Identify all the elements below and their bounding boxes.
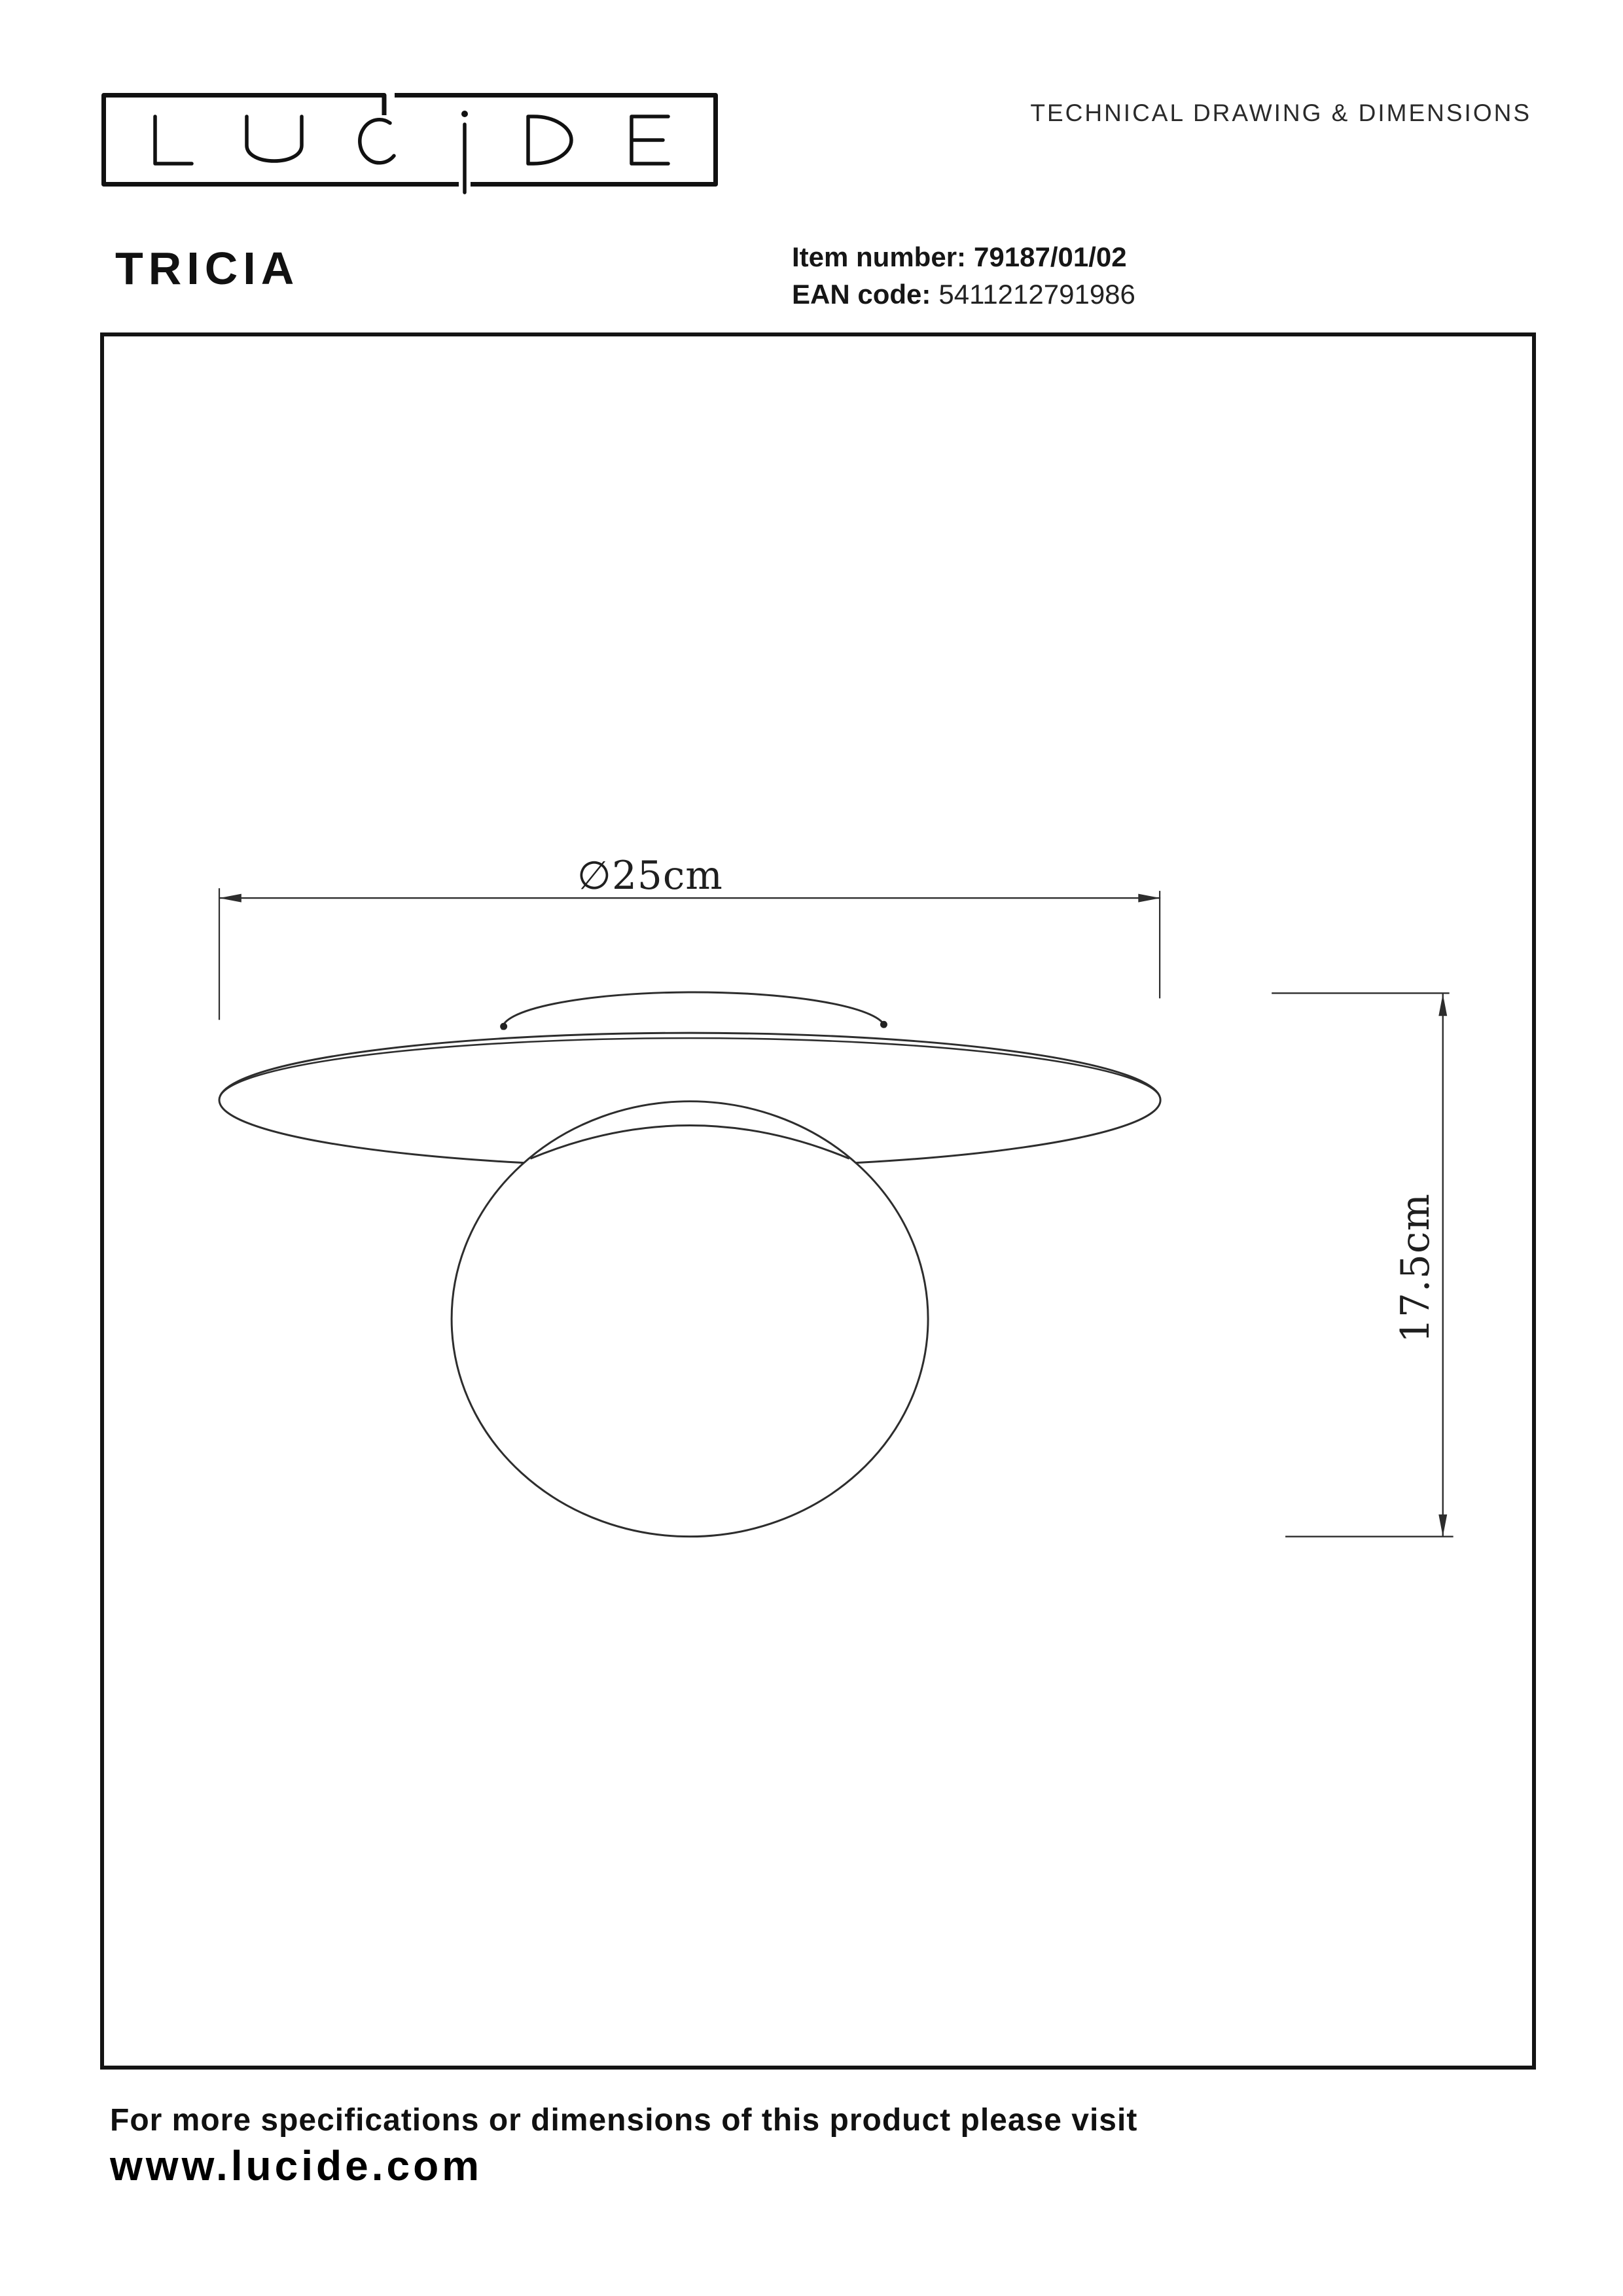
product-name: TRICIA <box>115 242 299 295</box>
item-number-label: Item number: <box>792 242 966 272</box>
diameter-dimension-label: ∅25cm <box>577 853 723 899</box>
footer-website-link[interactable]: www.lucide.com <box>110 2142 482 2190</box>
height-arrow-bottom <box>1438 1515 1447 1537</box>
logo-letter-c <box>360 120 394 163</box>
logo-letter-l <box>155 117 192 164</box>
logo-letter-u <box>247 117 302 161</box>
canopy-screw-right <box>880 1021 887 1028</box>
technical-drawing: ∅25cm 17.5cm <box>104 336 1532 2066</box>
item-number-row: Item number:79187/01/02 <box>792 238 1135 276</box>
product-codes: Item number:79187/01/02 EAN code:5411212… <box>792 238 1135 313</box>
doc-type-title: TECHNICAL DRAWING & DIMENSIONS <box>1030 99 1531 127</box>
logo-letter-i-dot <box>461 111 468 117</box>
canopy-screw-left <box>500 1023 507 1030</box>
height-dimension-label: 17.5cm <box>1393 1193 1438 1343</box>
diameter-arrow-right <box>1138 894 1160 903</box>
technical-drawing-canvas: ∅25cm 17.5cm <box>100 332 1536 2070</box>
ean-row: EAN code:5411212791986 <box>792 276 1135 313</box>
logo-letter-e <box>632 117 668 164</box>
ean-label: EAN code: <box>792 279 931 310</box>
lucide-logo <box>101 93 718 195</box>
glass-sphere-outline <box>452 1102 928 1537</box>
diameter-arrow-left <box>219 894 241 903</box>
ceiling-canopy <box>503 992 885 1030</box>
spec-sheet-page: TECHNICAL DRAWING & DIMENSIONS TRICIA It… <box>0 0 1623 2296</box>
logo-letter-d <box>528 117 571 164</box>
height-arrow-top <box>1438 994 1447 1016</box>
logo-frame-left <box>104 96 459 185</box>
disc-rim-inner-line <box>219 1038 1160 1100</box>
logo-frame-right <box>395 96 716 185</box>
ean-value: 5411212791986 <box>938 279 1135 310</box>
footer-note: For more specifications or dimensions of… <box>110 2102 1137 2138</box>
item-number-value: 79187/01/02 <box>974 242 1127 272</box>
